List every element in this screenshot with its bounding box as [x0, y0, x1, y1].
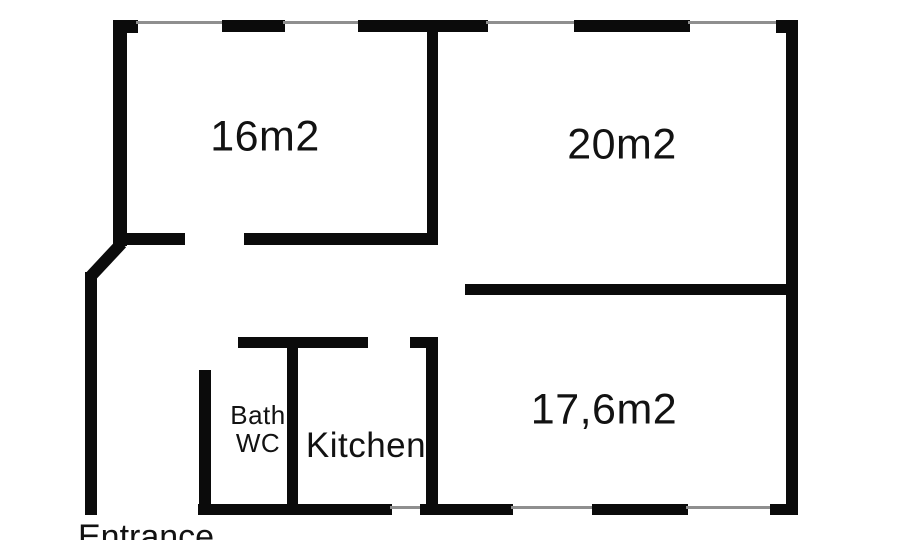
wall-bath-left	[199, 370, 211, 515]
wall-left-lower	[85, 272, 97, 515]
window-top-1	[136, 21, 224, 24]
wall-bath-kitchen-divider	[287, 337, 298, 515]
wc-label-line2: WC	[230, 429, 286, 457]
wall-top-pier-1	[222, 20, 285, 32]
room-label-17-6m2: 17,6m2	[531, 386, 677, 435]
entrance-label: Entrance	[78, 518, 214, 540]
bath-label-line1: Bath	[230, 401, 286, 429]
window-bottom-1	[511, 506, 594, 509]
window-top-4	[688, 21, 778, 24]
floor-plan: 16m2 20m2 17,6m2 Bath WC Kitchen Entranc…	[0, 0, 900, 540]
room-label-bath-wc: Bath WC	[230, 401, 286, 457]
window-top-3	[486, 21, 576, 24]
wall-bottom-right-corner	[770, 504, 798, 515]
window-bottom-2	[686, 506, 772, 509]
wall-kitchen-right	[426, 337, 438, 515]
wall-bath-top	[238, 337, 368, 348]
window-bottom-threshold	[390, 506, 422, 509]
wall-top-pier-3	[574, 20, 690, 32]
room-label-20m2: 20m2	[567, 121, 677, 170]
wall-left-upper	[113, 20, 127, 246]
wall-16m2-bottom	[244, 233, 438, 245]
wall-divider-16-20	[427, 20, 438, 245]
room-label-16m2: 16m2	[210, 113, 320, 162]
wall-16m2-bottom-stub	[113, 233, 185, 245]
room-label-kitchen: Kitchen	[306, 426, 426, 466]
wall-right	[786, 20, 798, 515]
wall-bottom-seg-2	[420, 504, 513, 515]
wall-bottom-seg-1	[198, 504, 392, 515]
wall-top-pier-2	[358, 20, 488, 32]
wall-bottom-seg-3	[592, 504, 688, 515]
wall-divider-20-176	[465, 284, 798, 295]
window-top-2	[283, 21, 360, 24]
